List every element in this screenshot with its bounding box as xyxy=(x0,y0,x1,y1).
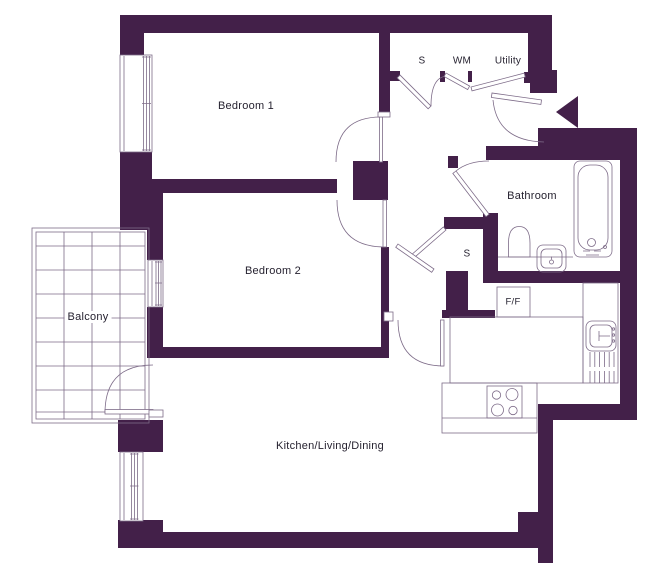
hob-icon xyxy=(487,386,522,418)
room-label-balcony: Balcony xyxy=(65,311,112,323)
label-washing-machine: WM xyxy=(453,56,471,67)
basin-icon xyxy=(537,245,566,272)
kitchen-sink-icon xyxy=(586,321,616,351)
door-entrance xyxy=(491,93,544,142)
label-utility: Utility xyxy=(495,56,521,67)
bath-icon xyxy=(574,161,612,257)
room-label-bathroom: Bathroom xyxy=(507,190,557,202)
room-label-bedroom2: Bedroom 2 xyxy=(245,265,301,277)
door-balcony xyxy=(105,365,163,417)
room-label-bedroom1: Bedroom 1 xyxy=(218,100,274,112)
entry-arrow-icon xyxy=(556,96,578,128)
toilet-icon xyxy=(509,227,531,258)
balcony-deck xyxy=(32,228,149,423)
closet-doors xyxy=(397,73,525,109)
window-bedroom1 xyxy=(120,55,152,152)
door-bathroom xyxy=(453,161,489,217)
drainer-lines xyxy=(590,352,614,383)
room-label-kitchen-living-dining: Kitchen/Living/Dining xyxy=(276,440,384,452)
label-store-hall: S xyxy=(419,56,426,67)
label-fridge-freezer: F/F xyxy=(506,297,521,308)
window-bedroom2 xyxy=(148,260,163,307)
floor-plan: Bedroom 1 Bedroom 2 Bathroom Kitchen/Liv… xyxy=(0,0,657,570)
plan-linework xyxy=(0,0,657,570)
window-living xyxy=(120,452,143,521)
door-bedroom2 xyxy=(337,200,387,247)
door-living xyxy=(384,312,444,366)
store-doors xyxy=(396,227,446,272)
door-bedroom1 xyxy=(336,112,390,162)
label-store-inner: S xyxy=(464,249,471,260)
